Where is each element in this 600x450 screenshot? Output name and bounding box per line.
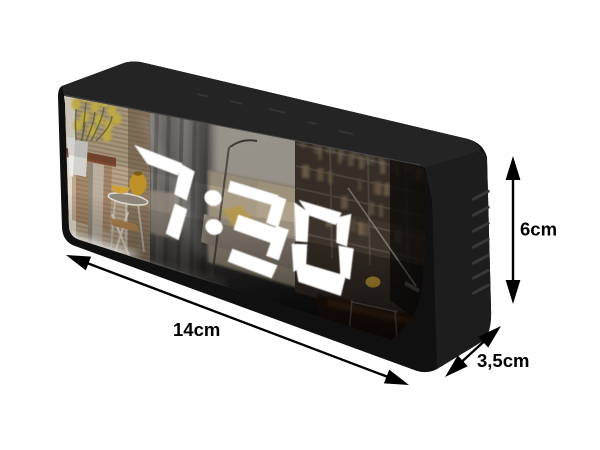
svg-text:14cm: 14cm bbox=[173, 319, 220, 340]
svg-text:6cm: 6cm bbox=[520, 219, 557, 240]
svg-text:3,5cm: 3,5cm bbox=[477, 350, 529, 371]
